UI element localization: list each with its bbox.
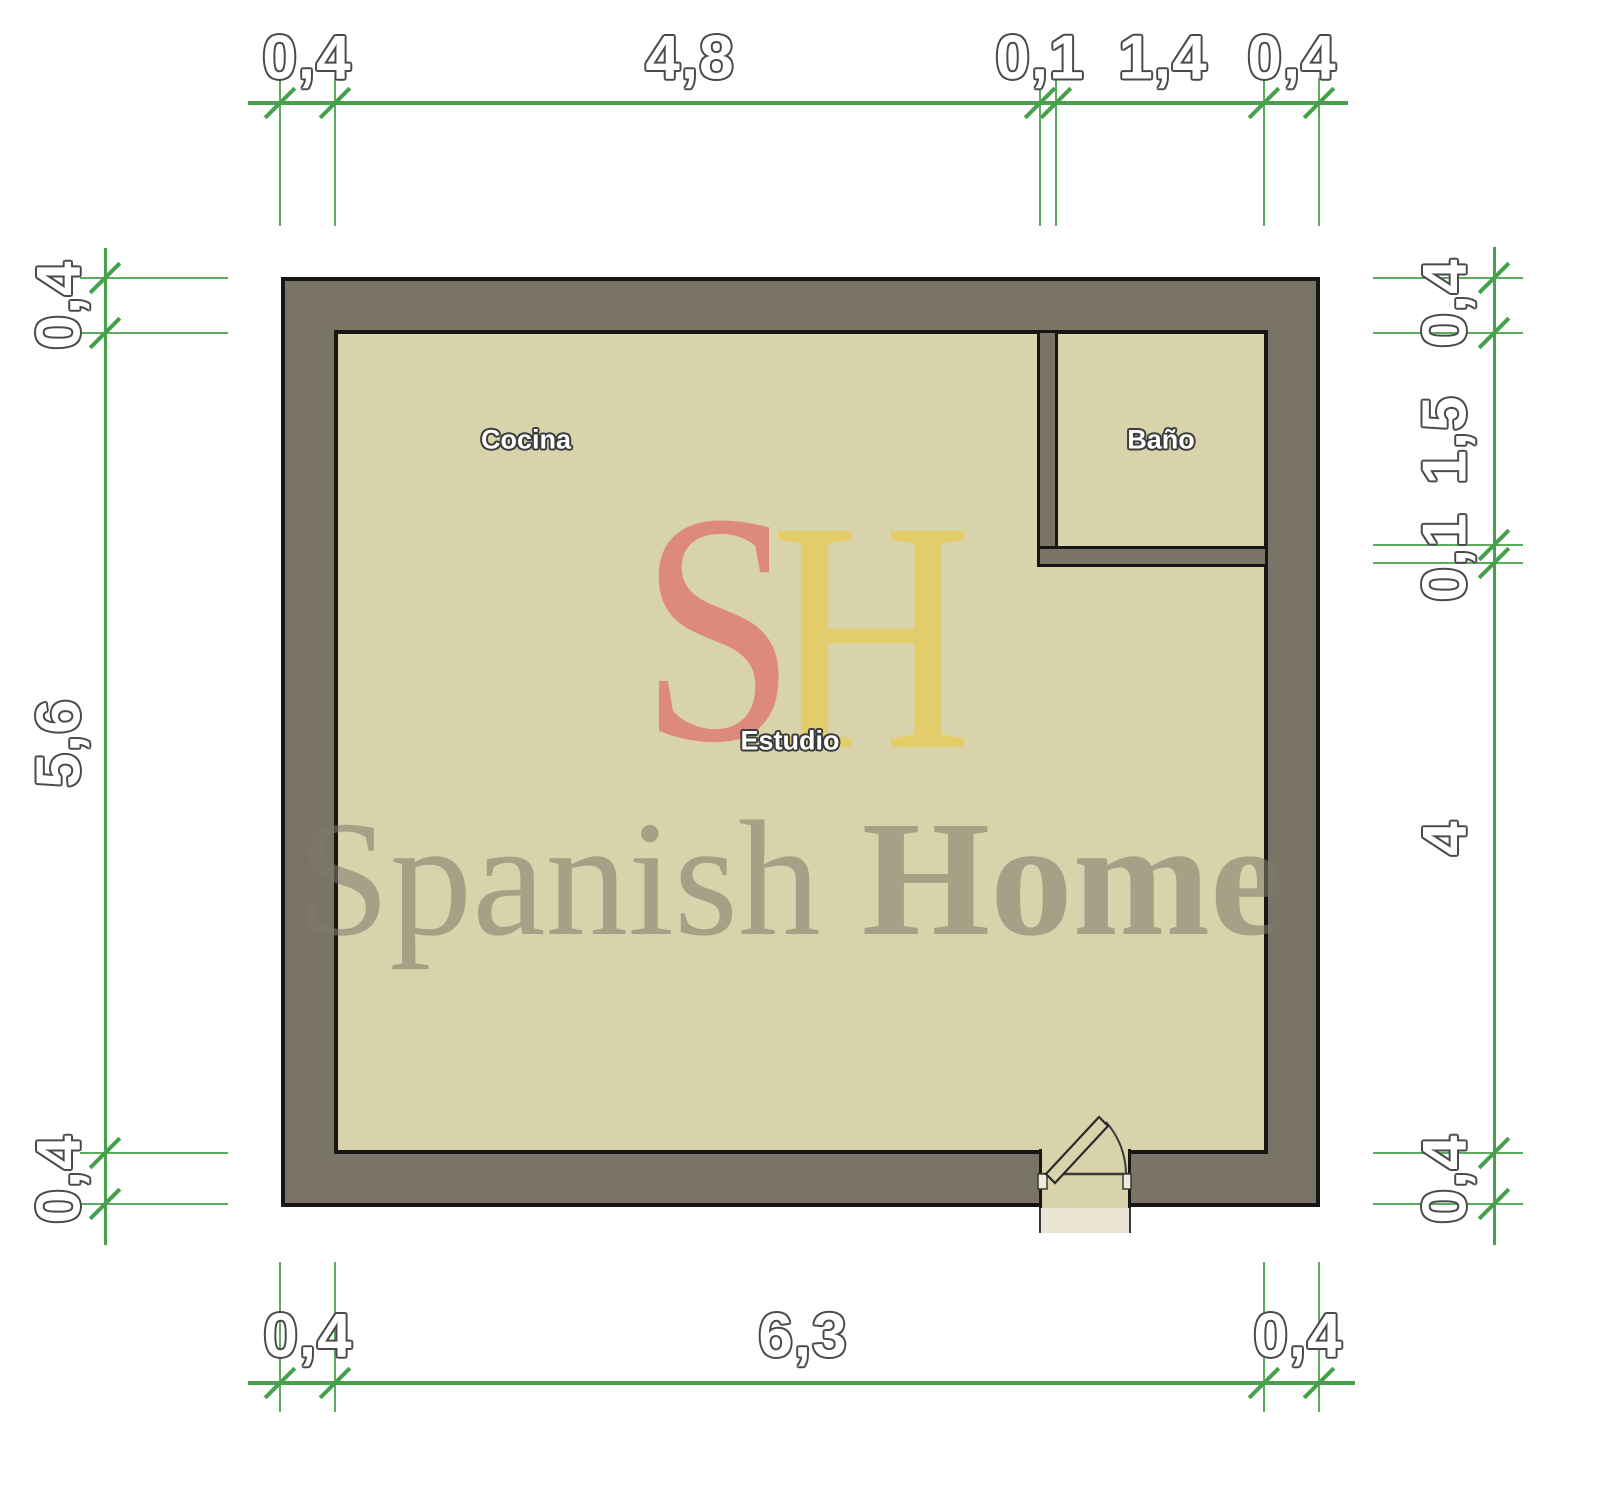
floorplan-canvas: S H Spanish Home Cocina Estudio Baño 0,4… — [0, 0, 1600, 1488]
dim-label-left-0: 0,4 — [24, 260, 95, 349]
dim-label-top-0: 0,4 — [262, 23, 351, 94]
dimension-line-top — [248, 101, 1348, 105]
dim-label-top-2: 0,1 — [995, 23, 1084, 94]
dimension-line-bottom — [248, 1381, 1355, 1385]
dim-label-left-1: 5,6 — [24, 698, 95, 787]
dim-label-top-3: 1,4 — [1118, 23, 1207, 94]
room-label-bano: Baño — [1127, 425, 1195, 456]
room-label-estudio: Estudio — [741, 726, 840, 757]
brand-word-spanish: Spanish — [298, 787, 821, 970]
bathroom-partition-vertical — [1037, 330, 1058, 567]
dimension-line-right — [1493, 247, 1496, 1245]
room-label-cocina: Cocina — [481, 425, 571, 456]
door-swing-icon — [1030, 1100, 1140, 1240]
dim-label-top-1: 4,8 — [645, 23, 734, 94]
brand-word-home: Home — [862, 787, 1284, 970]
dim-label-right-3: 4 — [1410, 820, 1481, 855]
dim-label-right-4: 0,4 — [1410, 1134, 1481, 1223]
brand-watermark: Spanish Home — [298, 796, 1283, 961]
dim-label-top-4: 0,4 — [1247, 23, 1336, 94]
bathroom-partition-horizontal — [1037, 546, 1268, 567]
dim-label-right-0: 0,4 — [1410, 258, 1481, 347]
dim-label-bottom-0: 0,4 — [263, 1301, 352, 1372]
dim-label-right-2: 0,1 — [1410, 512, 1481, 601]
dimension-line-left — [104, 248, 107, 1245]
dim-label-left-2: 0,4 — [24, 1134, 95, 1223]
dim-label-bottom-2: 0,4 — [1253, 1301, 1342, 1372]
dim-label-right-1: 1,5 — [1410, 395, 1481, 484]
dim-label-bottom-1: 6,3 — [758, 1301, 847, 1372]
